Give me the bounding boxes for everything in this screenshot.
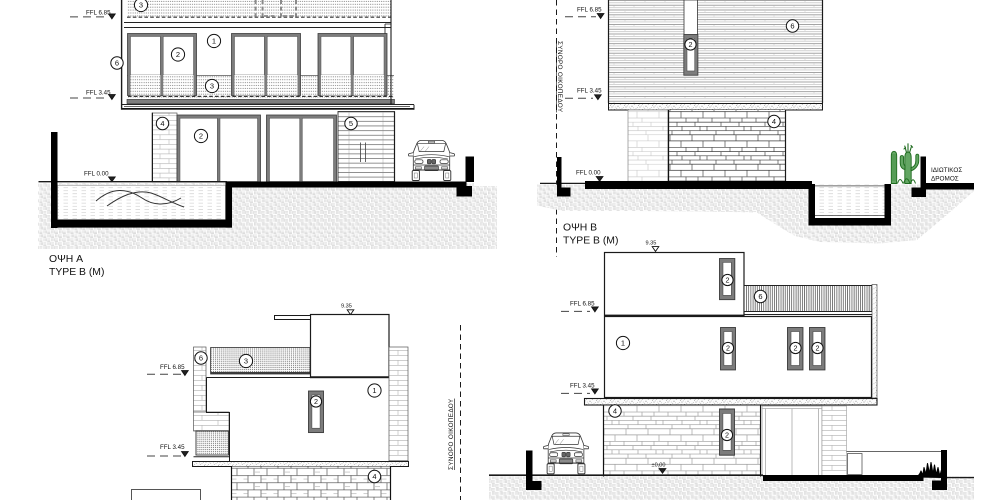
svg-text:2: 2 [816,344,820,353]
svg-text:3: 3 [244,357,248,366]
svg-text:ΟΨΗ A: ΟΨΗ A [49,254,83,265]
svg-text:2: 2 [726,276,730,285]
svg-text:3: 3 [210,82,214,91]
svg-text:6: 6 [199,354,203,363]
svg-text:1: 1 [212,37,216,46]
svg-text:2: 2 [176,50,180,59]
svg-text:9.35: 9.35 [341,304,352,310]
svg-text:FFL 3.45: FFL 3.45 [86,90,111,97]
svg-text:6: 6 [115,59,119,68]
svg-text:ΣΥΝΟΡΟ ΟΙΚΟΠΕΔΟΥ: ΣΥΝΟΡΟ ΟΙΚΟΠΕΔΟΥ [556,41,563,113]
svg-text:1: 1 [372,386,376,395]
svg-text:FFL 6.85: FFL 6.85 [570,301,595,308]
svg-text:FFL 0.00: FFL 0.00 [576,170,601,177]
svg-text:2: 2 [725,431,729,440]
svg-text:FFL 6.85: FFL 6.85 [160,364,185,371]
svg-text:4: 4 [160,119,164,128]
svg-text:2: 2 [726,344,730,353]
svg-text:FFL 3.45: FFL 3.45 [577,88,602,95]
svg-text:4: 4 [613,407,617,416]
svg-text:4: 4 [772,117,776,126]
svg-text:FFL 6.85: FFL 6.85 [86,10,111,17]
svg-text:2: 2 [794,344,798,353]
svg-text:ΣΥΝΟΡΟ ΟΙΚΟΠΕΔΟΥ: ΣΥΝΟΡΟ ΟΙΚΟΠΕΔΟΥ [448,398,455,470]
svg-text:±0.00: ±0.00 [652,463,666,469]
svg-text:ΔΡΟΜΟΣ: ΔΡΟΜΟΣ [931,176,959,183]
svg-text:FFL 6.85: FFL 6.85 [577,7,602,14]
svg-text:6: 6 [790,22,794,31]
svg-text:TYPE B (M): TYPE B (M) [49,267,104,278]
svg-text:2: 2 [199,132,203,141]
svg-text:2: 2 [314,397,318,406]
svg-text:FFL 3.45: FFL 3.45 [570,383,595,390]
svg-text:1: 1 [621,339,625,348]
svg-text:4: 4 [372,472,376,481]
svg-text:2: 2 [689,40,693,49]
svg-text:FFL 3.45: FFL 3.45 [160,444,185,451]
svg-text:6: 6 [758,292,762,301]
svg-text:ΙΔΙΩΤΙΚΟΣ: ΙΔΙΩΤΙΚΟΣ [931,167,962,174]
svg-text:TYPE B (M): TYPE B (M) [563,235,618,246]
svg-text:ΟΨΗ B: ΟΨΗ B [563,223,597,234]
svg-text:3: 3 [139,1,143,10]
svg-text:9.35: 9.35 [646,241,657,247]
svg-text:5: 5 [349,119,353,128]
svg-text:FFL 0.00: FFL 0.00 [84,171,109,178]
